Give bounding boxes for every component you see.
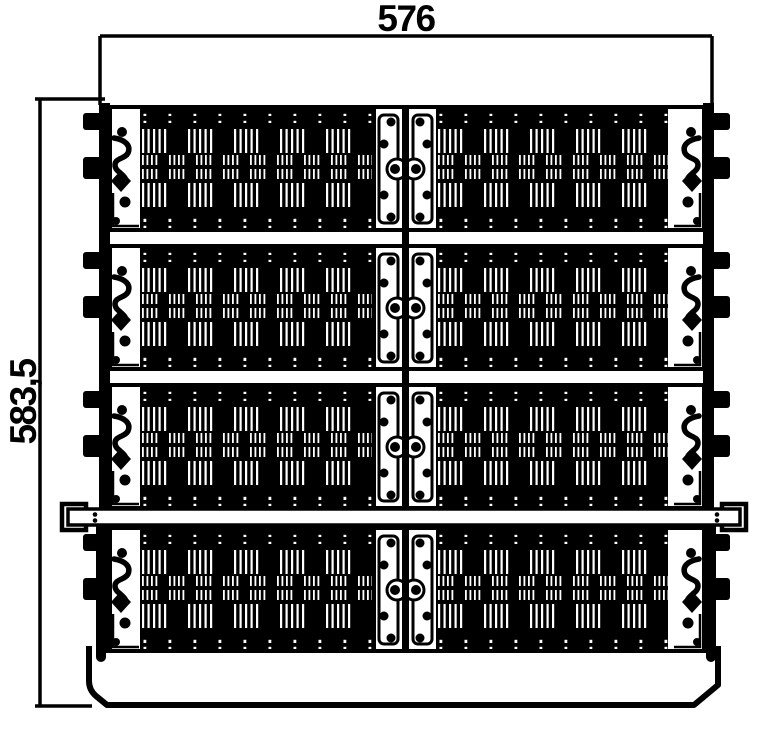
technical-drawing: 576 583,5 (0, 0, 772, 743)
width-dimension-label: 576 (377, 0, 435, 39)
center-seam (402, 105, 409, 653)
base-tray (89, 646, 718, 705)
trunnion-bar (68, 509, 740, 525)
side-rail-left (99, 103, 110, 653)
technical-drawing-page: 576 583,5 (0, 0, 772, 743)
side-rail-right (703, 103, 714, 653)
height-dimension-label: 583,5 (3, 359, 44, 445)
width-dimension (100, 36, 712, 105)
